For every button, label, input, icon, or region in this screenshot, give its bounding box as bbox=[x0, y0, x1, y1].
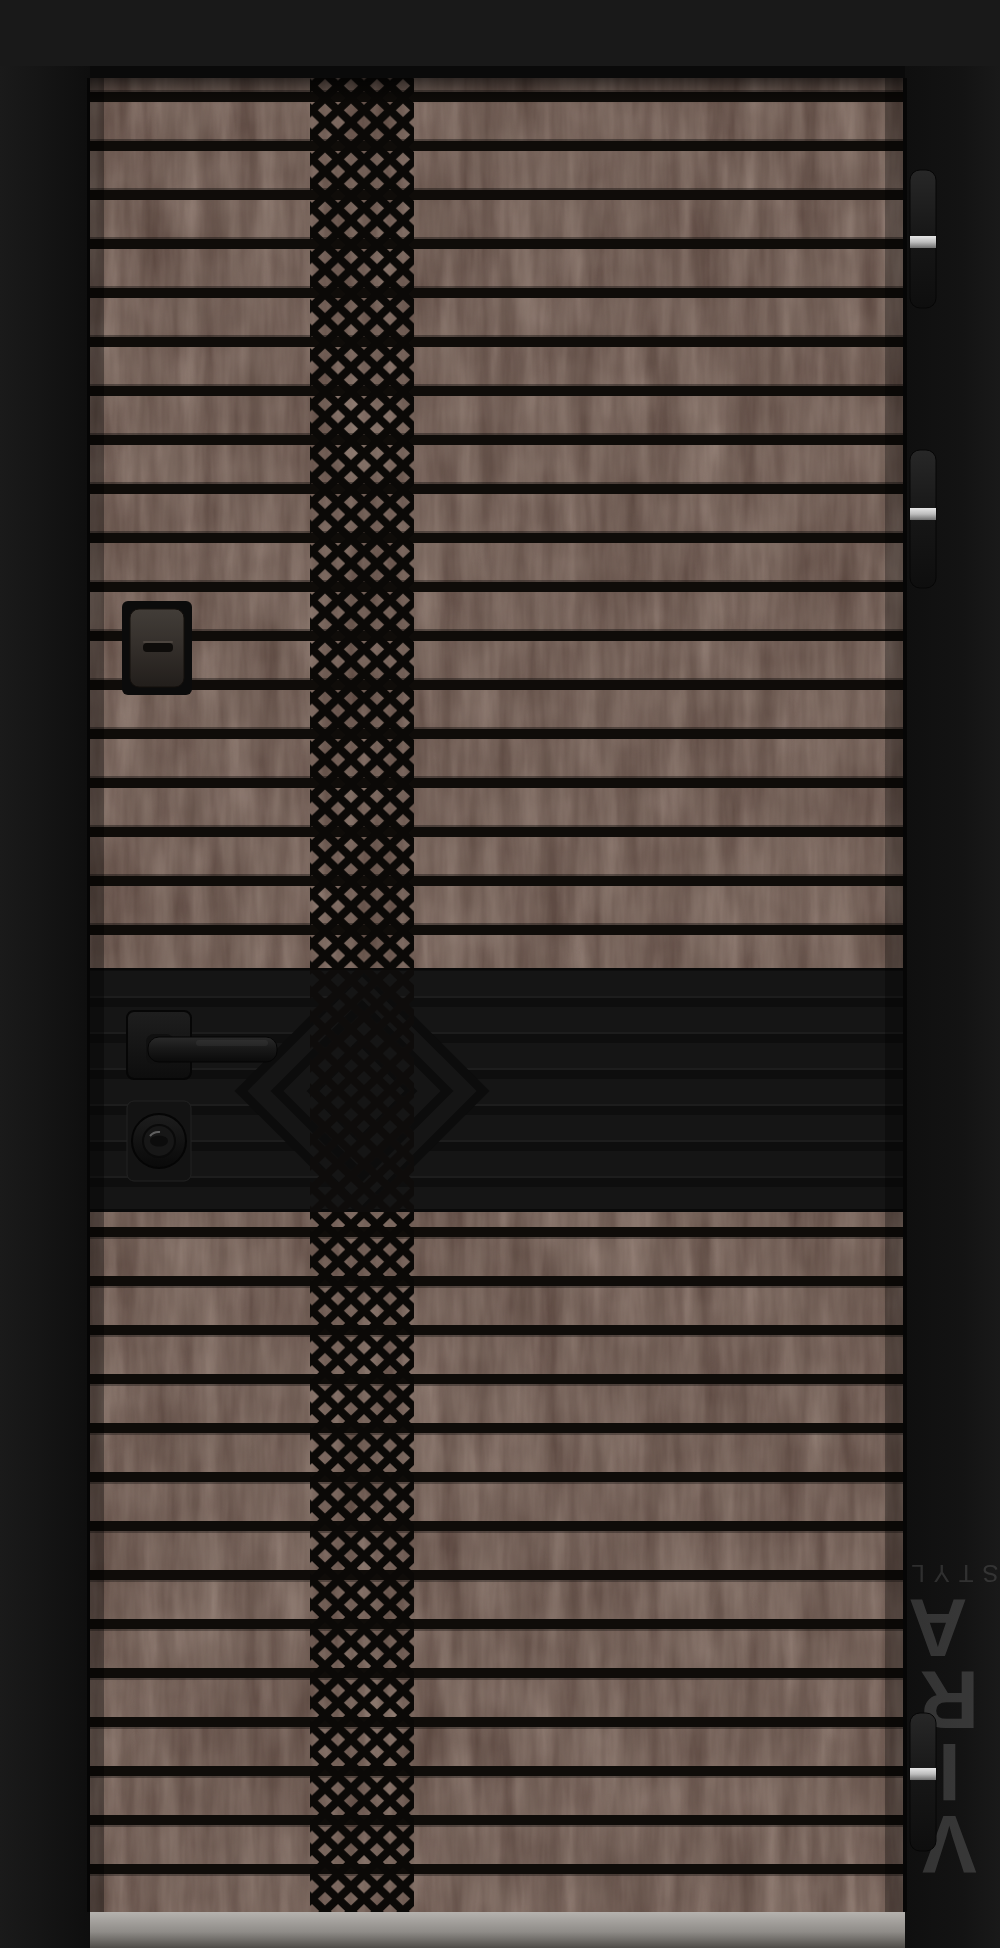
door-leaf bbox=[90, 78, 905, 1912]
left-frame-jamb bbox=[0, 66, 90, 1948]
middle-band bbox=[90, 968, 905, 1212]
peephole bbox=[122, 601, 192, 695]
hinge-pin-band bbox=[910, 508, 936, 520]
lower-slats bbox=[90, 1212, 905, 1912]
keyhole bbox=[150, 1136, 168, 1147]
door-product-photo: STYLE V I R A bbox=[0, 0, 1000, 1948]
hinge-pin-band bbox=[910, 236, 936, 248]
svg-text:V I R A: V I R A bbox=[897, 1583, 979, 1890]
threshold bbox=[90, 1912, 905, 1948]
hinge-top bbox=[910, 170, 936, 308]
peephole-slot bbox=[143, 643, 173, 652]
watermark-letter: A bbox=[908, 1583, 967, 1674]
lattice-column bbox=[310, 78, 414, 1912]
left-gap-seam bbox=[87, 78, 90, 1912]
top-wall bbox=[0, 0, 1000, 66]
upper-slats bbox=[90, 78, 905, 970]
panel-top-shadow bbox=[90, 78, 905, 104]
cylinder-lock bbox=[127, 1101, 191, 1181]
hinge-pin-band bbox=[910, 1768, 936, 1780]
right-gap-seam bbox=[903, 78, 907, 1912]
hinge-bottom bbox=[910, 1713, 936, 1851]
door-illustration: STYLE V I R A bbox=[0, 0, 1000, 1948]
top-frame-seam bbox=[0, 66, 1000, 78]
hinge-upper bbox=[910, 450, 936, 588]
